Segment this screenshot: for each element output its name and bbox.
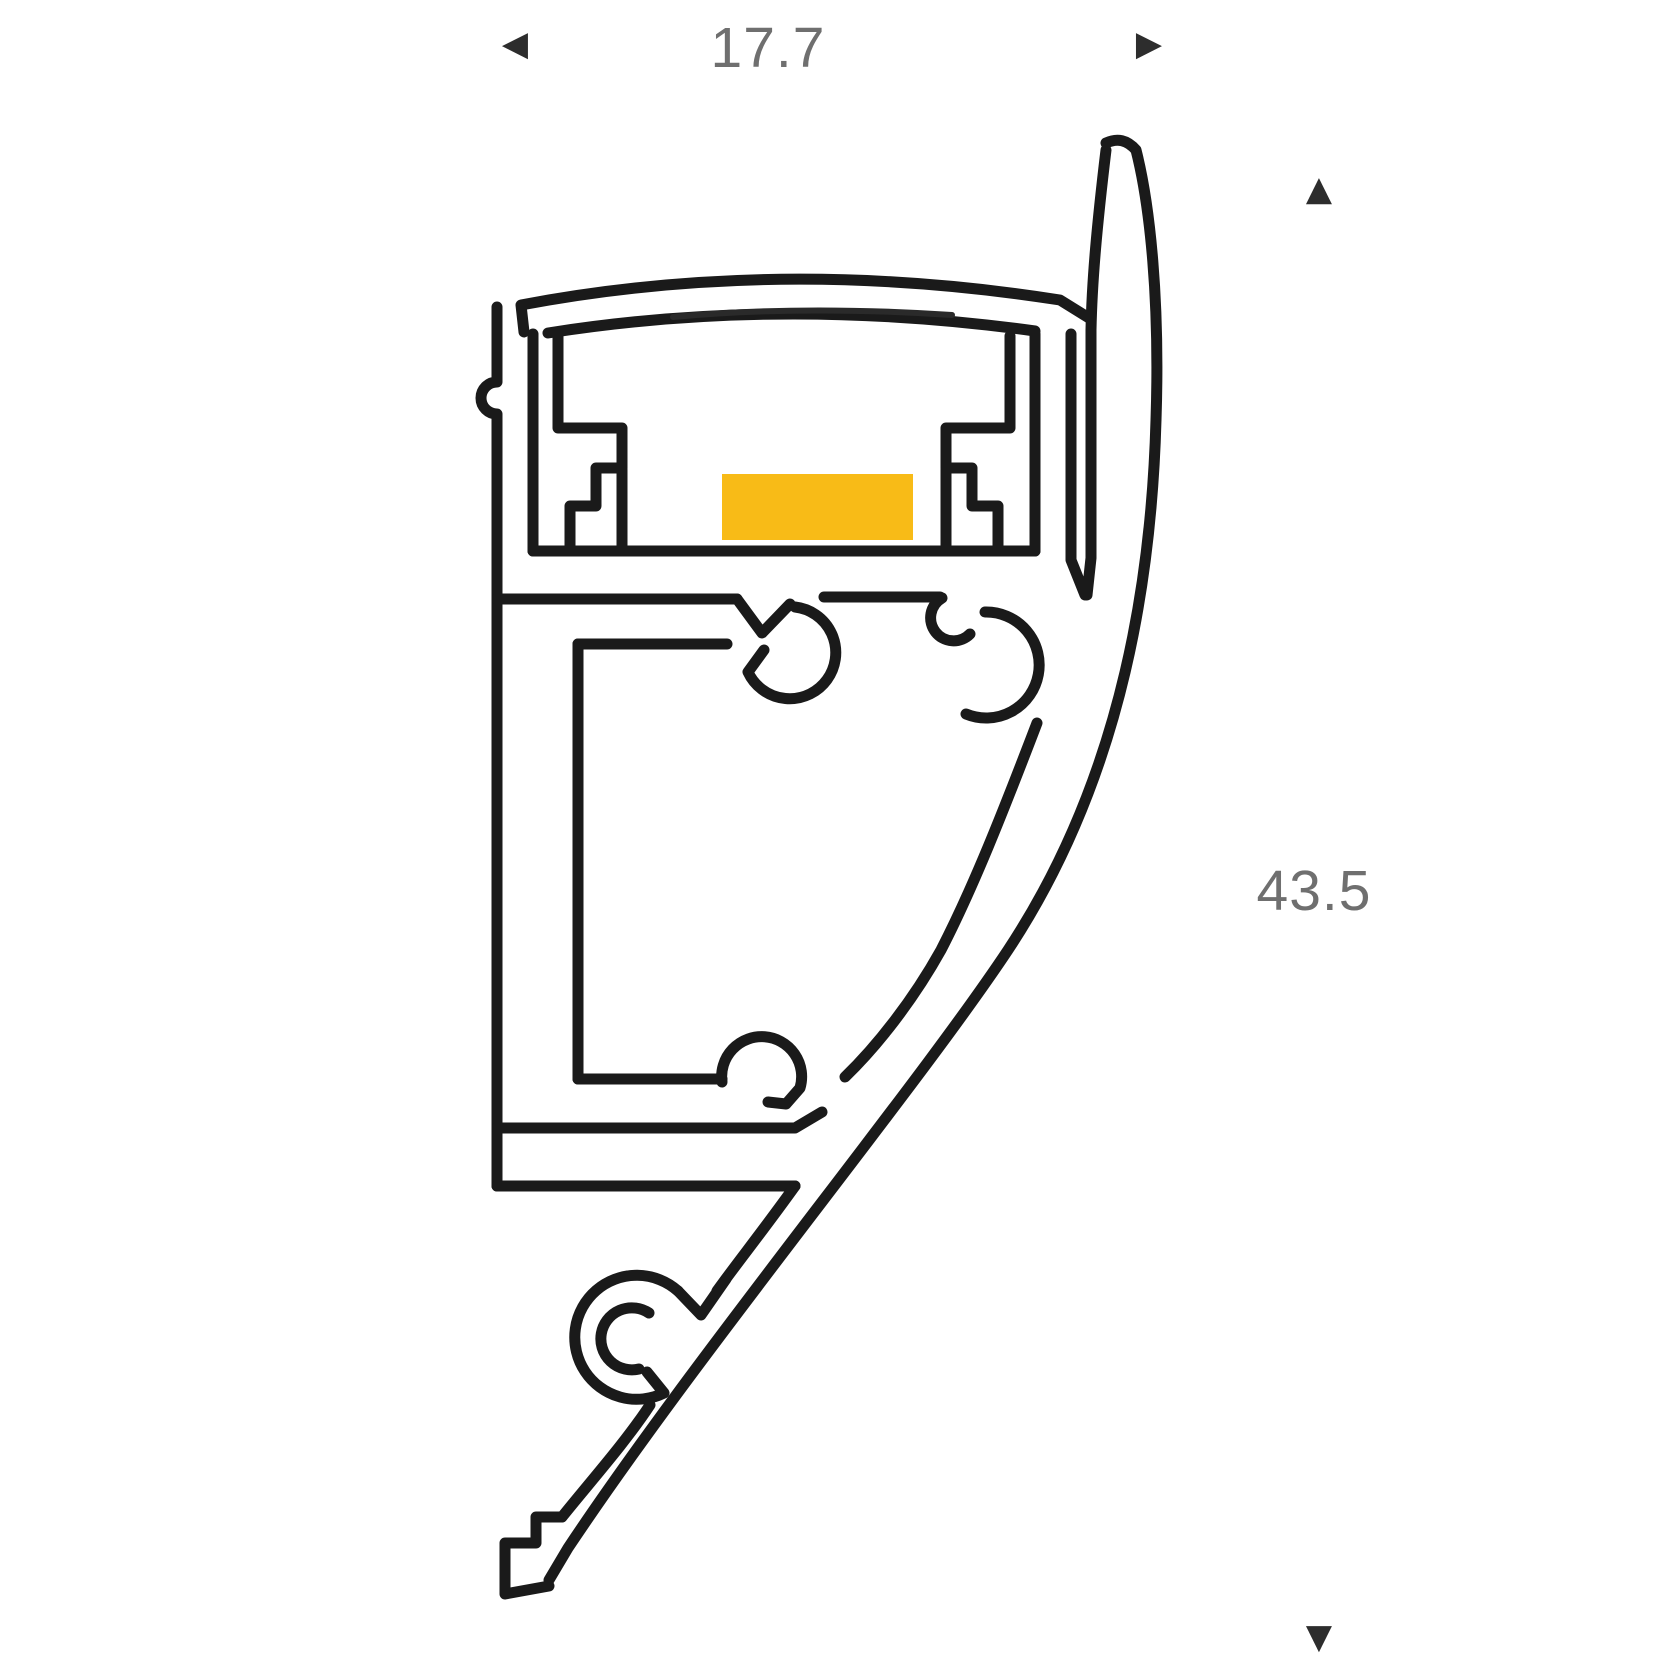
diagram-canvas: ◀ 17.7 ▶ ▲ 43.5 ▼ [0, 0, 1676, 1676]
fin-inner-edge-top [1087, 150, 1106, 595]
arrow-right-icon: ▶ [1136, 24, 1163, 64]
arrow-up-icon: ▲ [1306, 169, 1333, 209]
bottom-hook-boss [722, 1037, 802, 1104]
center-screw-boss [748, 607, 836, 699]
width-dimension: ◀ 17.7 ▶ [502, 16, 1163, 80]
left-clip [558, 336, 622, 546]
arrow-down-icon: ▼ [1306, 1617, 1333, 1657]
box-outer-bottom [497, 1112, 822, 1128]
cover-underside-arc [548, 314, 1035, 333]
dimension-width-label: 17.7 [711, 16, 826, 80]
right-outer-wall [1071, 334, 1085, 595]
profile-cross-section-svg: ◀ 17.7 ▶ ▲ 43.5 ▼ [0, 0, 1676, 1676]
right-screw-boss-hook [931, 598, 970, 641]
left-outer-wall [481, 307, 497, 1186]
arrow-left-icon: ◀ [502, 24, 529, 64]
profile-outline [481, 140, 1157, 1594]
height-dimension: ▲ 43.5 ▼ [1257, 169, 1372, 1657]
fin-inner-edge-mid [845, 723, 1037, 1077]
right-clip [946, 336, 1010, 546]
right-screw-boss [966, 612, 1039, 718]
divider-notch [737, 599, 790, 633]
lower-screw-boss [575, 1275, 678, 1399]
led-strip [722, 474, 913, 540]
dimension-height-label: 43.5 [1257, 859, 1372, 923]
lower-boss-notch [678, 1279, 726, 1315]
lower-screw-boss-inner [601, 1308, 649, 1370]
